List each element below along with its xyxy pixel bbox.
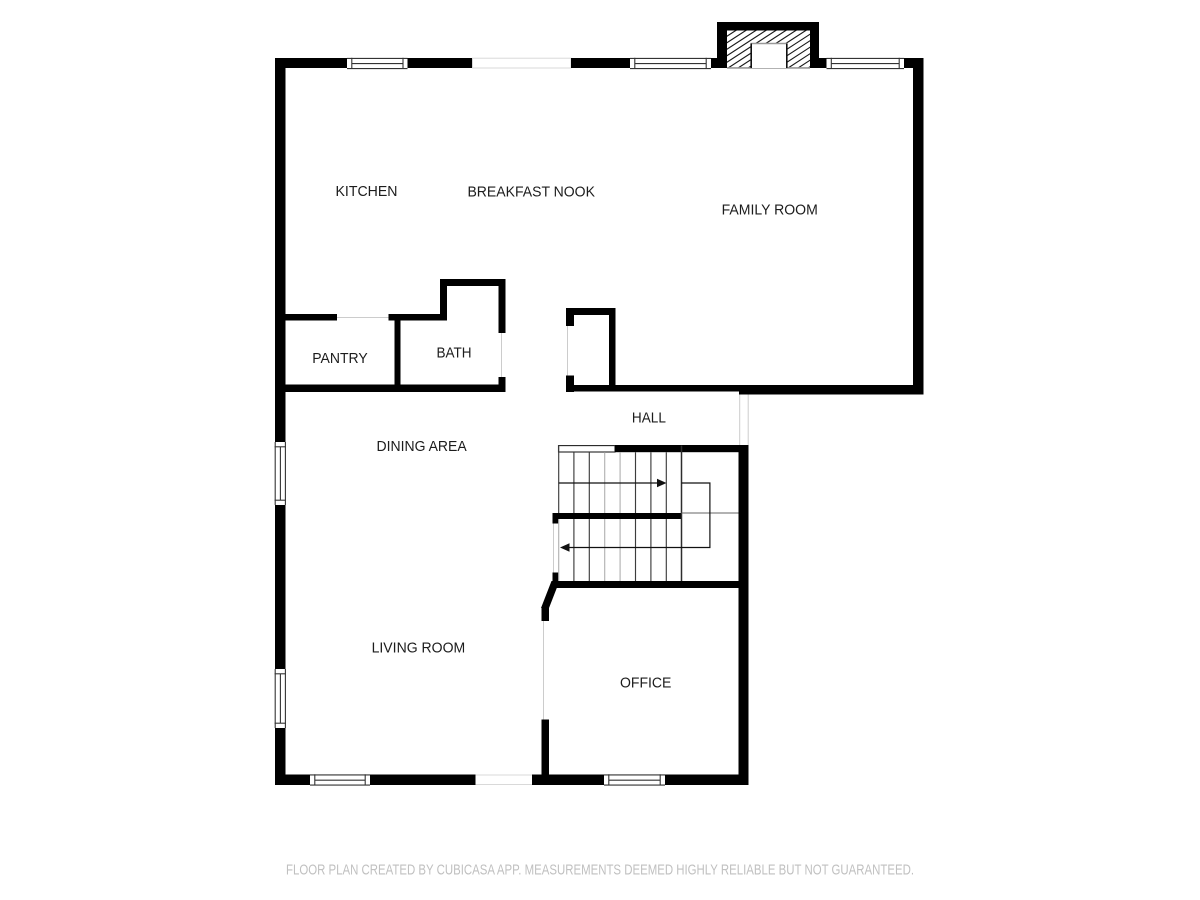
- svg-text:FLOOR PLAN CREATED BY CUBICASA: FLOOR PLAN CREATED BY CUBICASA APP. MEAS…: [286, 862, 914, 879]
- svg-text:OFFICE: OFFICE: [620, 675, 672, 691]
- svg-text:BATH: BATH: [436, 345, 471, 361]
- svg-text:PANTRY: PANTRY: [312, 351, 368, 367]
- svg-text:HALL: HALL: [632, 410, 666, 426]
- svg-text:DINING AREA: DINING AREA: [377, 439, 467, 455]
- svg-text:KITCHEN: KITCHEN: [336, 184, 398, 200]
- svg-text:BREAKFAST NOOK: BREAKFAST NOOK: [467, 185, 595, 201]
- svg-text:LIVING ROOM: LIVING ROOM: [372, 641, 466, 657]
- svg-text:FAMILY ROOM: FAMILY ROOM: [722, 202, 818, 218]
